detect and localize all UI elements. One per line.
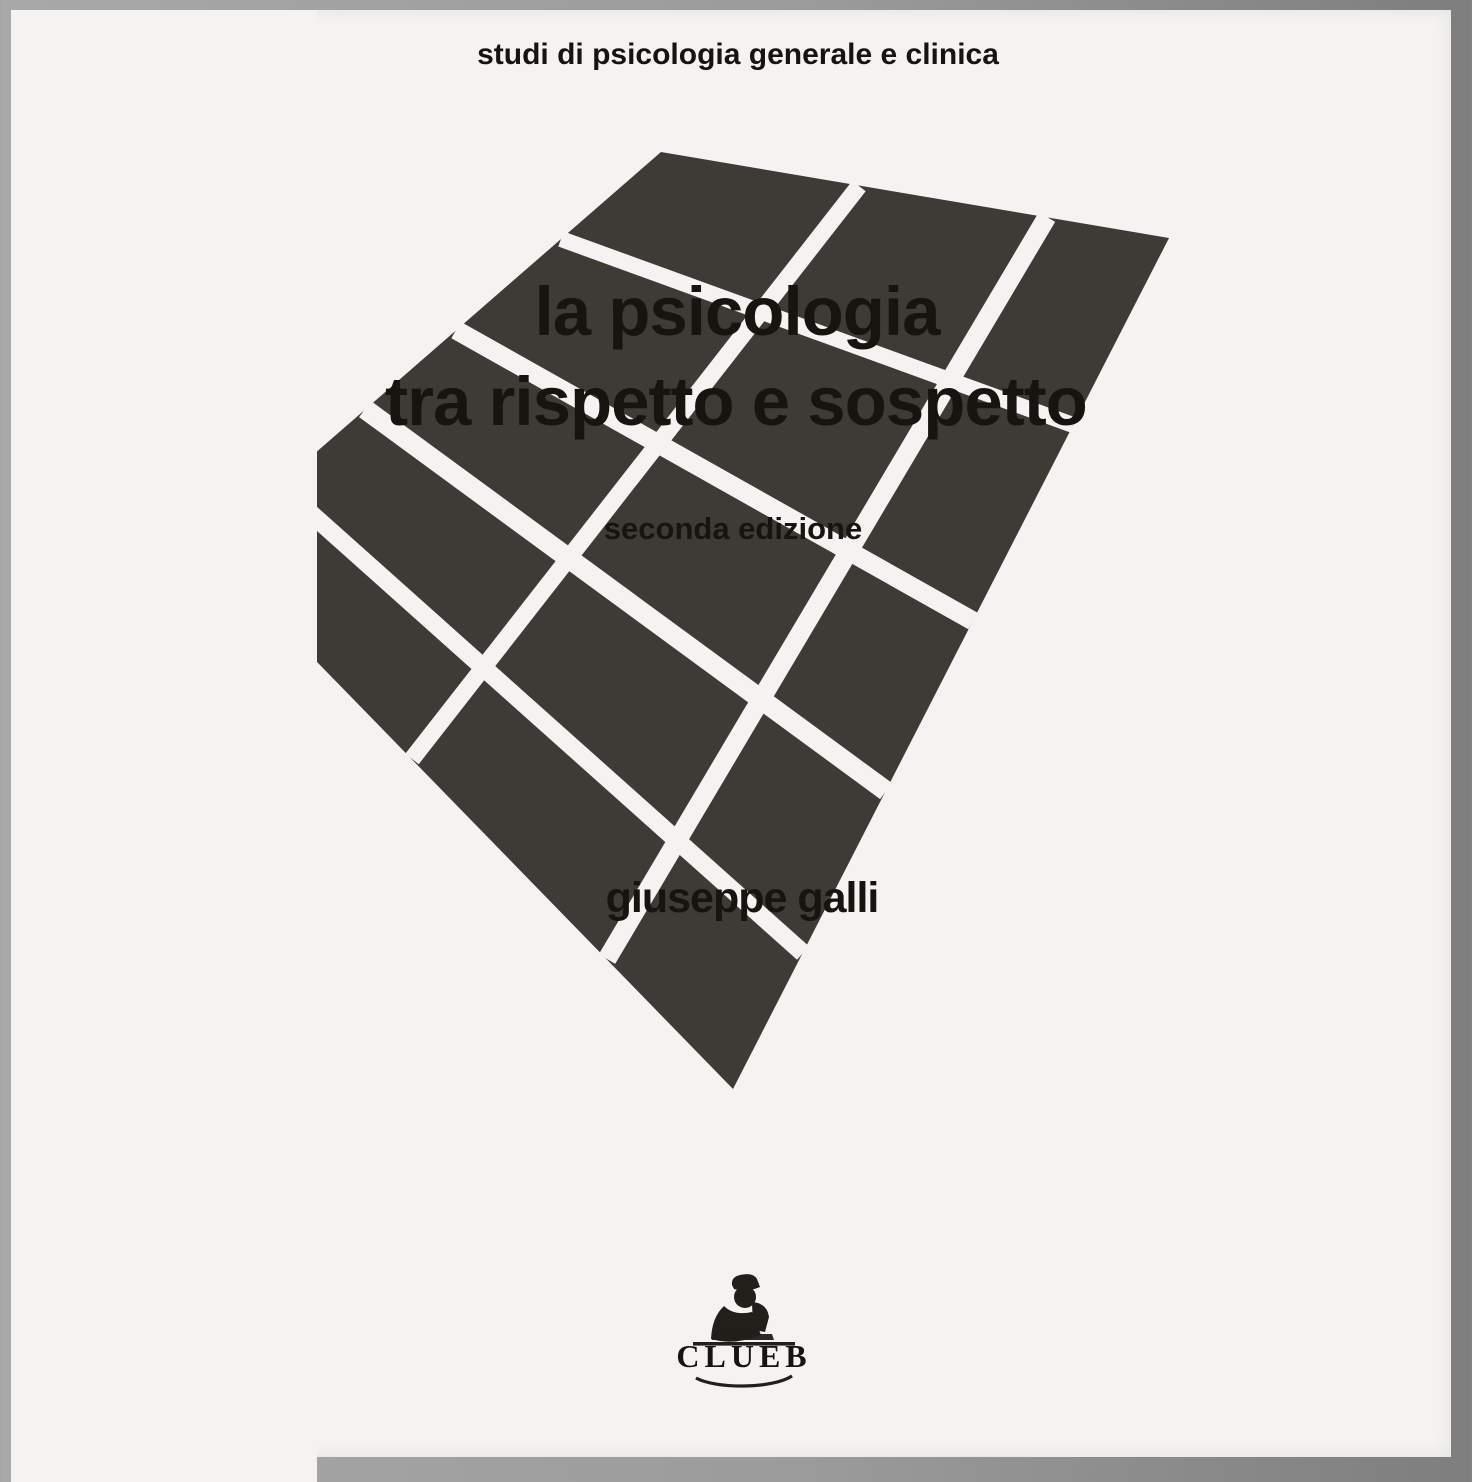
book-cover-page: studi di psicologia generale e clinica l… (11, 10, 1451, 1457)
clueb-figure-icon (644, 1272, 844, 1402)
title-line-1: la psicologia (535, 272, 940, 351)
edition-label: seconda edizione (604, 511, 862, 547)
title-line-2: tra rispetto e sospetto (385, 362, 1087, 441)
left-clip-mask (11, 10, 317, 1482)
publisher-name: CLUEB (676, 1338, 811, 1375)
publisher-logo: CLUEB (644, 1272, 844, 1402)
author-name: giuseppe galli (606, 874, 879, 923)
series-title: studi di psicologia generale e clinica (477, 38, 999, 72)
checkerboard-artwork (11, 10, 1472, 1482)
